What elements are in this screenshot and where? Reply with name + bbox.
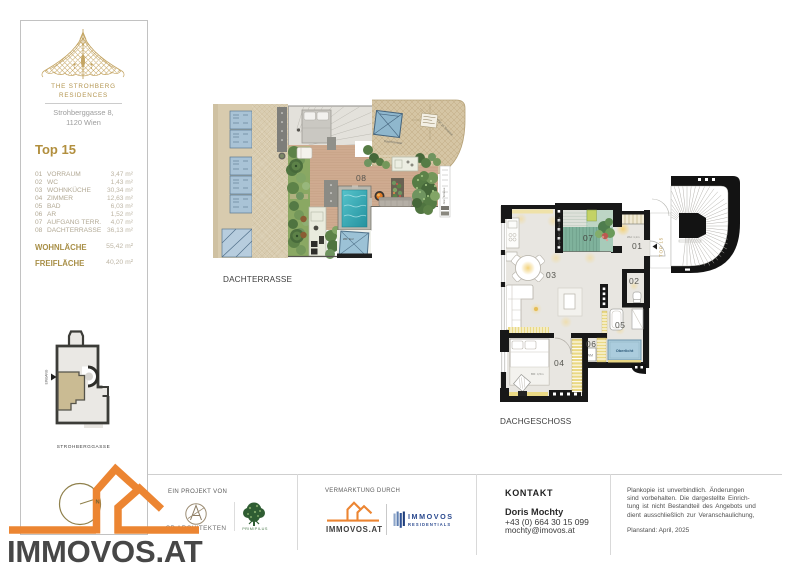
svg-text:06: 06 — [586, 339, 596, 349]
svg-text:01: 01 — [632, 241, 642, 251]
svg-text:Abst. Terrasse: Abst. Terrasse — [442, 187, 446, 204]
svg-text:Oberlicht: Oberlicht — [616, 348, 634, 353]
svg-text:EINGANG: EINGANG — [45, 369, 49, 384]
svg-text:TOP 15: TOP 15 — [659, 237, 664, 257]
svg-text:BR: 4,5m: BR: 4,5m — [531, 372, 544, 376]
svg-text:07: 07 — [583, 233, 593, 243]
svg-text:02: 02 — [629, 276, 639, 286]
svg-text:Aufgang zur Dachterrasse: Aufgang zur Dachterrasse — [557, 216, 561, 247]
svg-text:WH: 1,1m: WH: 1,1m — [627, 235, 640, 239]
svg-text:N: N — [96, 500, 100, 506]
svg-text:03: 03 — [546, 270, 556, 280]
svg-text:08: 08 — [356, 173, 366, 183]
svg-text:WF: 4m²: WF: 4m² — [343, 237, 354, 241]
svg-text:05: 05 — [615, 320, 625, 330]
svg-text:04: 04 — [554, 358, 564, 368]
